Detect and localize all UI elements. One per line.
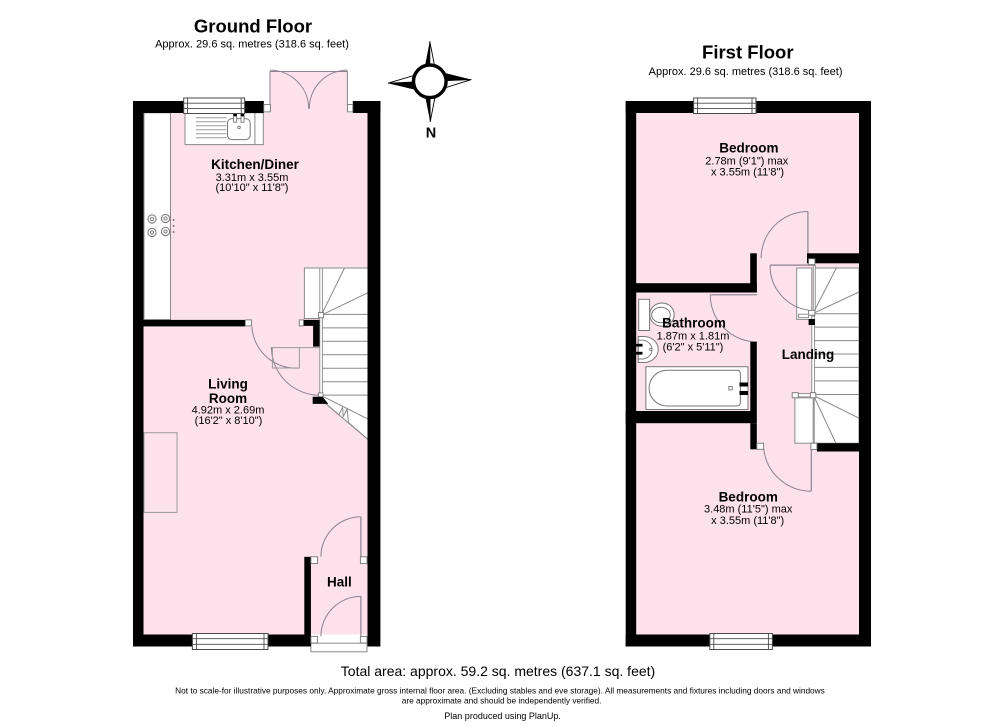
- svg-text:(16'2" x 8'10"): (16'2" x 8'10"): [195, 415, 263, 427]
- svg-text:x 3.55m (11'8"): x 3.55m (11'8"): [711, 167, 784, 179]
- svg-text:are approximate and should be: are approximate and should be independen…: [402, 696, 602, 706]
- svg-text:Bedroom: Bedroom: [719, 141, 778, 156]
- svg-text:(10'10" x 11'8"): (10'10" x 11'8"): [216, 182, 289, 194]
- svg-text:Not to scale-for illustrative: Not to scale-for illustrative purposes o…: [175, 685, 825, 695]
- svg-text:N: N: [426, 126, 436, 142]
- svg-text:3.48m (11'5") max: 3.48m (11'5") max: [704, 504, 793, 516]
- svg-text:First Floor: First Floor: [702, 42, 793, 63]
- svg-text:Living: Living: [208, 377, 248, 392]
- svg-text:Total area: approx. 59.2 sq. m: Total area: approx. 59.2 sq. metres (637…: [341, 663, 655, 679]
- svg-text:Bedroom: Bedroom: [719, 490, 778, 505]
- svg-text:Landing: Landing: [782, 347, 835, 362]
- svg-text:Hall: Hall: [327, 575, 352, 590]
- svg-text:Plan produced using PlanUp.: Plan produced using PlanUp.: [444, 711, 561, 721]
- svg-text:(6'2" x 5'11"): (6'2" x 5'11"): [663, 342, 724, 354]
- svg-text:Approx. 29.6 sq. metres (318.6: Approx. 29.6 sq. metres (318.6 sq. feet): [155, 39, 349, 51]
- svg-text:Ground Floor: Ground Floor: [194, 16, 312, 37]
- svg-text:Bathroom: Bathroom: [662, 316, 726, 331]
- svg-text:Approx. 29.6 sq. metres (318.6: Approx. 29.6 sq. metres (318.6 sq. feet): [649, 66, 843, 78]
- svg-text:Kitchen/Diner: Kitchen/Diner: [211, 157, 300, 172]
- svg-text:x 3.55m (11'8"): x 3.55m (11'8"): [711, 515, 784, 527]
